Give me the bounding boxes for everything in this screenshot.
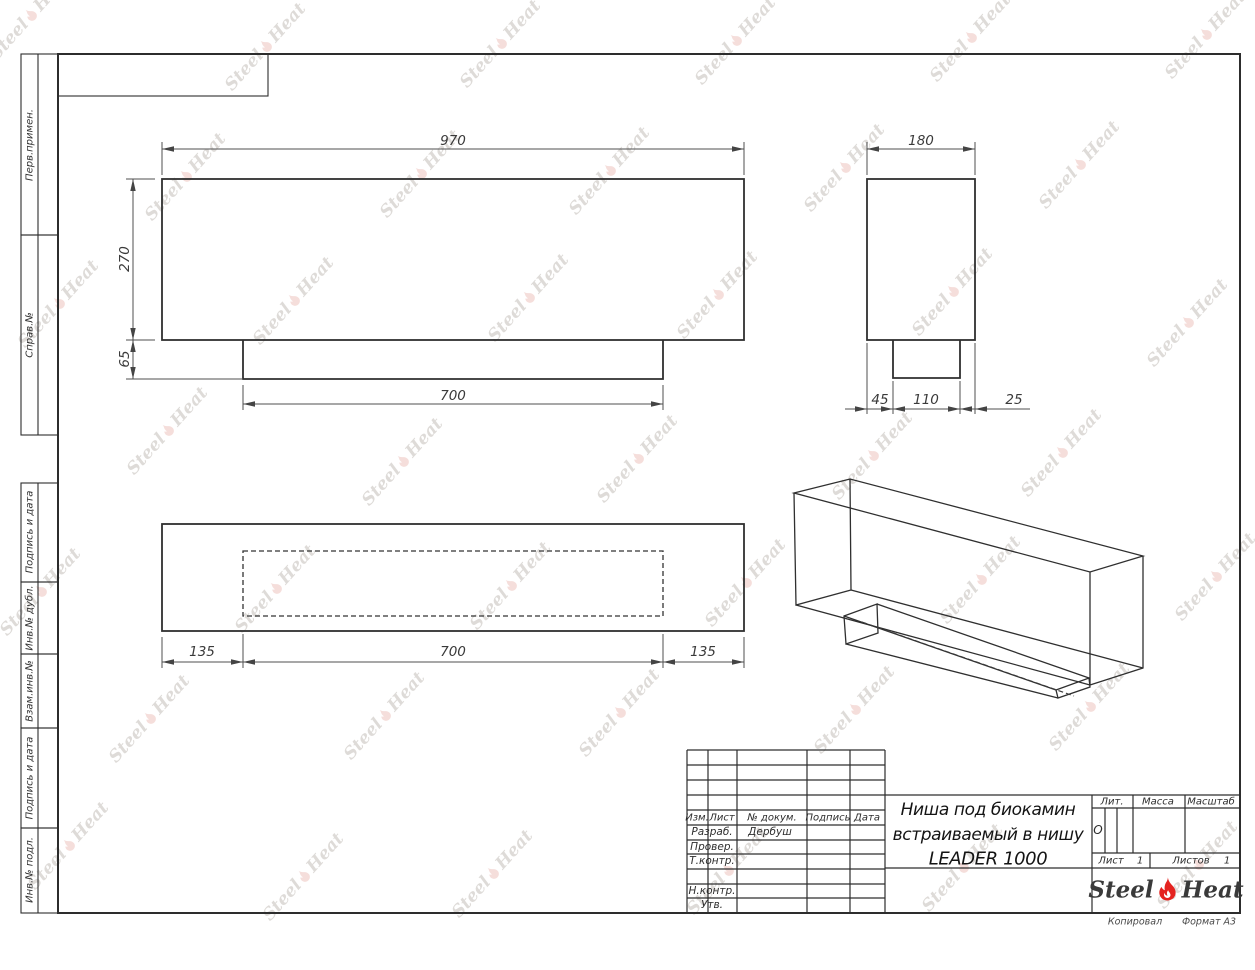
tb-mass-label: Масса bbox=[1142, 797, 1174, 808]
tb-row-prover: Провер. bbox=[690, 841, 734, 853]
dim-side-middle: 110 bbox=[913, 392, 939, 408]
tb-row-razrab-name: Дербуш bbox=[748, 826, 792, 838]
dimension-arrows bbox=[130, 146, 987, 664]
strip-label-inv-podl: Инв.№ подл. bbox=[25, 837, 36, 903]
drawing-title-line-2: встраиваемый в нишу bbox=[893, 825, 1084, 845]
tb-sheet-value: 1 bbox=[1137, 856, 1143, 867]
dim-side-right: 25 bbox=[1005, 392, 1022, 408]
front-view bbox=[162, 179, 744, 379]
strip-label-sprav-no: Справ.№ bbox=[25, 312, 36, 357]
dim-front-tab-width: 700 bbox=[440, 388, 466, 404]
top-left-box bbox=[58, 54, 268, 96]
dim-front-height: 270 bbox=[117, 246, 133, 272]
drawing-title-line-3: LEADER 1000 bbox=[929, 849, 1048, 870]
tb-scale-label: Масштаб bbox=[1187, 797, 1235, 808]
tb-col-podpis: Подпись bbox=[806, 813, 851, 824]
tb-col-docnum: № докум. bbox=[747, 813, 796, 824]
tb-row-nkontr: Н.контр. bbox=[689, 885, 736, 897]
tb-sheets-label: Листов bbox=[1172, 856, 1209, 867]
tb-lit-value: О bbox=[1093, 823, 1102, 837]
steelheat-logo: Steel Heat bbox=[1088, 877, 1243, 904]
dim-side-left: 45 bbox=[871, 392, 888, 408]
strip-label-vzam-inv: Взам.инв.№ bbox=[25, 660, 36, 722]
tb-row-tkontr: Т.контр. bbox=[689, 855, 735, 867]
tb-col-data: Дата bbox=[854, 813, 880, 824]
format-label: Формат А3 bbox=[1182, 917, 1236, 928]
dim-plan-center: 700 bbox=[440, 644, 466, 660]
tb-col-list: Лист bbox=[709, 813, 734, 824]
dim-front-width: 970 bbox=[440, 133, 466, 149]
flame-icon bbox=[1157, 877, 1179, 903]
strip-label-inv-dubl: Инв.№ дубл. bbox=[25, 585, 36, 650]
strip-label-podpis-data-1: Подпись и дата bbox=[25, 491, 36, 574]
tb-col-izm: Изм. bbox=[685, 813, 709, 824]
logo-text-heat: Heat bbox=[1182, 877, 1244, 904]
strip-label-podpis-data-2: Подпись и дата bbox=[25, 737, 36, 820]
dim-side-width: 180 bbox=[908, 133, 934, 149]
side-view bbox=[867, 179, 975, 378]
logo-text-steel: Steel bbox=[1088, 877, 1153, 904]
tb-sheets-value: 1 bbox=[1224, 856, 1230, 867]
tb-lit-label: Лит. bbox=[1100, 797, 1123, 808]
tb-row-utv: Утв. bbox=[701, 899, 723, 911]
dim-front-tab-height: 65 bbox=[117, 350, 133, 367]
drawing-title-line-1: Ниша под биокамин bbox=[901, 800, 1076, 820]
tb-sheet-label: Лист bbox=[1098, 856, 1123, 867]
plan-view bbox=[162, 524, 744, 631]
frame-border bbox=[58, 54, 1240, 913]
drawing-sheet: SteelHeatSteelHeatSteelHeatSteelHeatStee… bbox=[0, 0, 1255, 970]
copied-label: Копировал bbox=[1108, 917, 1162, 928]
dim-plan-right: 135 bbox=[690, 644, 716, 660]
tb-row-razrab: Разраб. bbox=[691, 826, 732, 838]
plan-view-hidden-opening bbox=[243, 551, 663, 616]
dim-plan-left: 135 bbox=[189, 644, 215, 660]
isometric-view bbox=[794, 479, 1143, 698]
strip-label-perv-primen: Перв.примен. bbox=[25, 109, 36, 181]
